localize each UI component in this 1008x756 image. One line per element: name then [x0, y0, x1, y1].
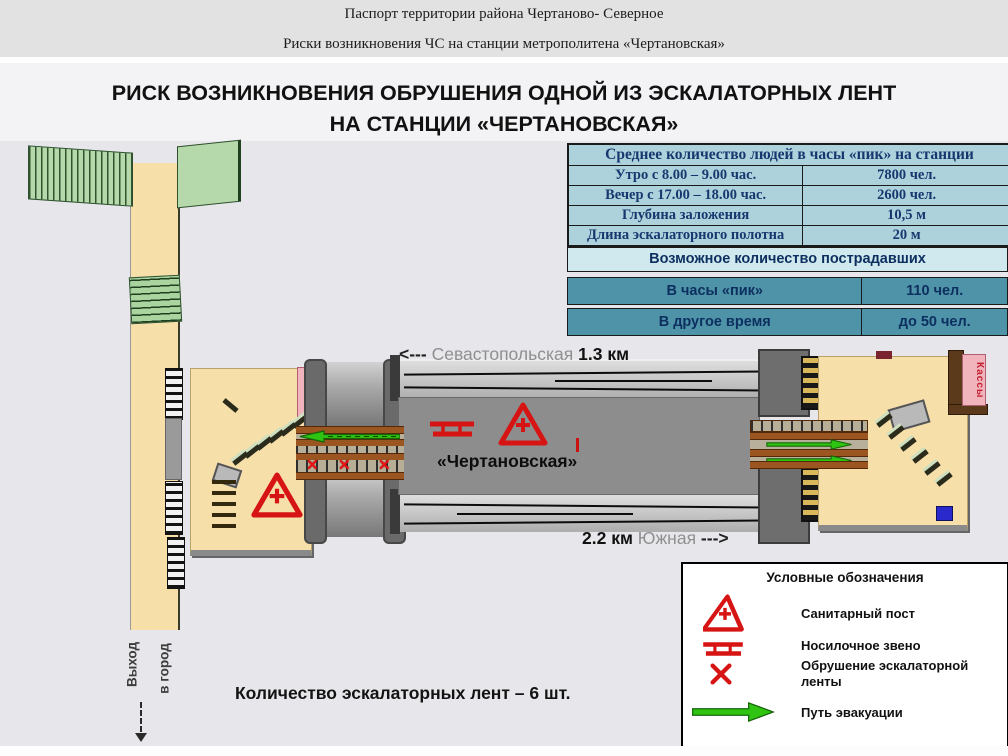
slide: Паспорт территории района Чертаново- Сев…	[0, 0, 1008, 756]
legend-item-label: Санитарный пост	[801, 606, 997, 622]
vestibule-stairs-icon	[167, 537, 185, 589]
underpass-stairs	[129, 275, 182, 325]
station-name-label: «Чертановская»	[437, 451, 577, 472]
tunnel-portal-west	[390, 489, 400, 534]
page-bottom-margin	[0, 746, 1008, 756]
row-value: 2600 чел.	[803, 186, 1008, 205]
barrier-bar	[212, 480, 236, 484]
legend-item-label: Носилочное звено	[801, 638, 997, 654]
north-neighbor-label: <--- Севастопольская 1.3 км	[399, 344, 629, 365]
wall-block	[876, 351, 892, 359]
escalator-belt	[750, 461, 868, 469]
row-label: Вечер с 17.00 – 18.00 час.	[569, 186, 803, 205]
vestibule-stairs-icon	[165, 368, 183, 420]
stretcher-icon	[697, 640, 749, 658]
row-value: до 50 чел.	[862, 309, 1007, 335]
row-value: 10,5 м	[803, 206, 1008, 225]
row-value: 110 чел.	[862, 278, 1007, 304]
tunnel-ring	[304, 359, 327, 433]
evacuation-path-icon	[298, 430, 400, 443]
escalator-collapse-icon: ✕	[306, 459, 319, 473]
legend: Условные обозначения Санитарный пост Нос…	[681, 562, 1008, 748]
street-stairs-east	[177, 140, 241, 209]
track-north	[398, 359, 790, 399]
table-row: В часы «пик» 110 чел.	[567, 277, 1008, 305]
neighbor-name: Севастопольская	[432, 344, 574, 364]
rail-line	[404, 386, 780, 391]
stretcher-icon	[428, 416, 476, 442]
station-platform	[398, 397, 760, 495]
legend-title: Условные обозначения	[683, 570, 1007, 585]
rail-line	[404, 519, 780, 524]
table-row: Длина эскалаторного полотна 20 м	[569, 225, 1008, 245]
exit-direction-arrowhead	[135, 733, 147, 742]
table-row: Вечер с 17.00 – 18.00 час. 2600 чел.	[569, 185, 1008, 205]
rail-line	[404, 503, 780, 508]
row-value: 7800 чел.	[803, 166, 1008, 185]
pedestrian-tunnel-top	[308, 362, 400, 426]
barrier-bar	[212, 513, 236, 517]
legend-item-label: Путь эвакуации	[801, 705, 997, 721]
row-label: В часы «пик»	[568, 278, 862, 304]
escalator-steps	[296, 446, 404, 453]
table-row: Глубина заложения 10,5 м	[569, 205, 1008, 225]
table-row: В другое время до 50 чел.	[567, 308, 1008, 336]
barrier-bar	[212, 491, 236, 495]
document-header: Паспорт территории района Чертаново- Сев…	[0, 0, 1008, 63]
exit-label-line2: в город	[157, 629, 172, 709]
barrier-bar	[212, 524, 236, 528]
row-label: Глубина заложения	[569, 206, 803, 225]
peak-hours-table-title: Среднее количество людей в часы «пик» на…	[569, 145, 1008, 165]
document-subtitle-1: Паспорт территории района Чертаново- Сев…	[0, 6, 1008, 23]
ticket-office-right-label: Кассы	[962, 354, 986, 406]
direction-arrow-west: <---	[399, 344, 427, 364]
red-marker	[576, 438, 579, 452]
table-row: Утро с 8.00 – 9.00 час. 7800 чел.	[569, 165, 1008, 185]
row-value: 20 м	[803, 226, 1008, 245]
row-label: В другое время	[568, 309, 862, 335]
service-point	[936, 506, 953, 521]
street-stairs-west	[28, 145, 133, 206]
neighbor-distance: 1.3 км	[578, 344, 629, 364]
direction-arrow-east: --->	[701, 528, 729, 548]
escalator-bank-east	[750, 420, 868, 467]
row-label: Утро с 8.00 – 9.00 час.	[569, 166, 803, 185]
exit-label-line1: Выход	[125, 625, 140, 705]
document-subtitle-2: Риски возникновения ЧС на станции метроп…	[0, 36, 1008, 53]
west-vestibule	[190, 368, 312, 556]
page-title-line1: РИСК ВОЗНИКНОВЕНИЯ ОБРУШЕНИЯ ОДНОЙ ИЗ ЭС…	[0, 78, 1008, 109]
south-neighbor-label: 2.2 км Южная --->	[582, 528, 729, 549]
sanitary-post-icon	[703, 594, 747, 632]
evacuation-path-icon	[691, 700, 775, 724]
track-south	[398, 493, 790, 532]
escalator-collapse-icon	[709, 662, 733, 686]
row-label: Длина эскалаторного полотна	[569, 226, 803, 245]
rail-line	[404, 370, 780, 375]
rail-line	[457, 513, 633, 515]
pedestrian-tunnel-bottom	[308, 471, 400, 537]
page-title: РИСК ВОЗНИКНОВЕНИЯ ОБРУШЕНИЯ ОДНОЙ ИЗ ЭС…	[0, 78, 1008, 140]
vestibule-wall	[165, 418, 182, 480]
escalator-collapse-icon: ✕	[378, 459, 391, 473]
escalator-collapse-icon: ✕	[338, 459, 351, 473]
vestibule-stairs-icon	[165, 481, 183, 535]
page-title-line2: НА СТАНЦИИ «ЧЕРТАНОВСКАЯ»	[0, 109, 1008, 140]
barrier-bar	[212, 502, 236, 506]
rail-line	[555, 380, 712, 382]
escalator-bank-west: ✕ ✕ ✕	[296, 426, 404, 479]
casualties-table-title: Возможное количество пострадавших	[567, 247, 1008, 272]
escalator-steps	[750, 420, 868, 432]
peak-hours-table: Среднее количество людей в часы «пик» на…	[567, 143, 1008, 247]
sanitary-post-icon	[497, 402, 549, 446]
neighbor-distance: 2.2 км	[582, 528, 633, 548]
exit-direction-arrow	[140, 702, 142, 732]
neighbor-name: Южная	[638, 528, 696, 548]
legend-item-label: Обрушение эскалаторной ленты	[801, 658, 997, 689]
escalator-count-note: Количество эскалаторных лент – 6 шт.	[235, 683, 570, 704]
